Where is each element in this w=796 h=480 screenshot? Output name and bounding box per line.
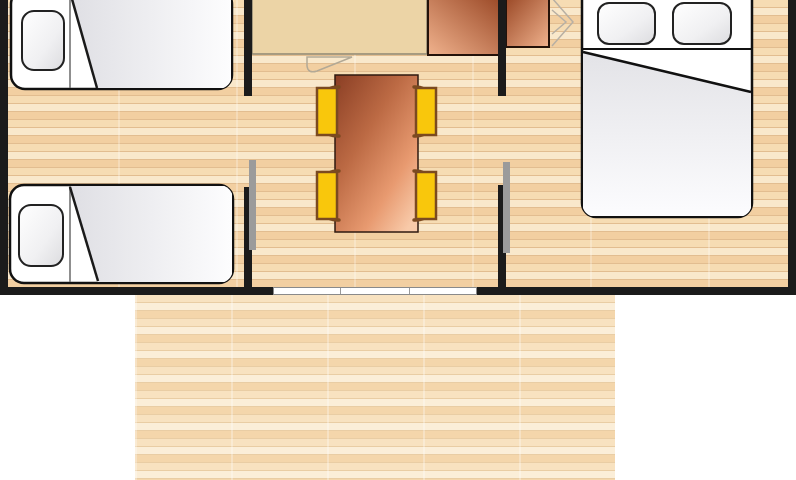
chair-bottom-right bbox=[414, 171, 436, 220]
chair-top-right bbox=[414, 87, 436, 136]
furniture-layer bbox=[0, 0, 796, 480]
wardrobe-unit bbox=[506, 0, 549, 47]
single-bed-1 bbox=[11, 0, 232, 89]
wall-exterior-left bbox=[0, 0, 8, 295]
door-leaf-left-bedroom bbox=[249, 160, 256, 250]
kitchen-unit bbox=[428, 0, 500, 55]
chair-top-left bbox=[317, 87, 339, 136]
sliding-patio-door bbox=[273, 287, 477, 295]
pillow bbox=[19, 205, 63, 266]
chair-seat bbox=[317, 88, 337, 135]
pillow-left bbox=[598, 3, 655, 44]
chair-seat bbox=[416, 88, 436, 135]
wall-right-bedroom-top bbox=[498, 0, 506, 96]
chair-seat bbox=[317, 172, 337, 219]
double-bed bbox=[582, 0, 752, 217]
door-leaf-right-bedroom bbox=[503, 162, 510, 253]
single-bed-2 bbox=[10, 185, 233, 283]
wall-exterior-right bbox=[788, 0, 796, 295]
folding-door-symbol bbox=[552, 0, 573, 46]
pillow bbox=[22, 11, 64, 70]
wall-exterior-bottom-right bbox=[477, 287, 796, 295]
chair-bottom-left bbox=[317, 171, 339, 220]
pillow-right bbox=[673, 3, 731, 44]
chair-seat bbox=[416, 172, 436, 219]
kitchen-counter bbox=[252, 0, 427, 54]
counter-flap-outline bbox=[307, 57, 352, 72]
mobile-home-floorplan bbox=[0, 0, 796, 480]
wall-left-bedroom-top bbox=[244, 0, 252, 96]
dining-table bbox=[335, 75, 418, 232]
wall-exterior-bottom-left bbox=[0, 287, 273, 295]
